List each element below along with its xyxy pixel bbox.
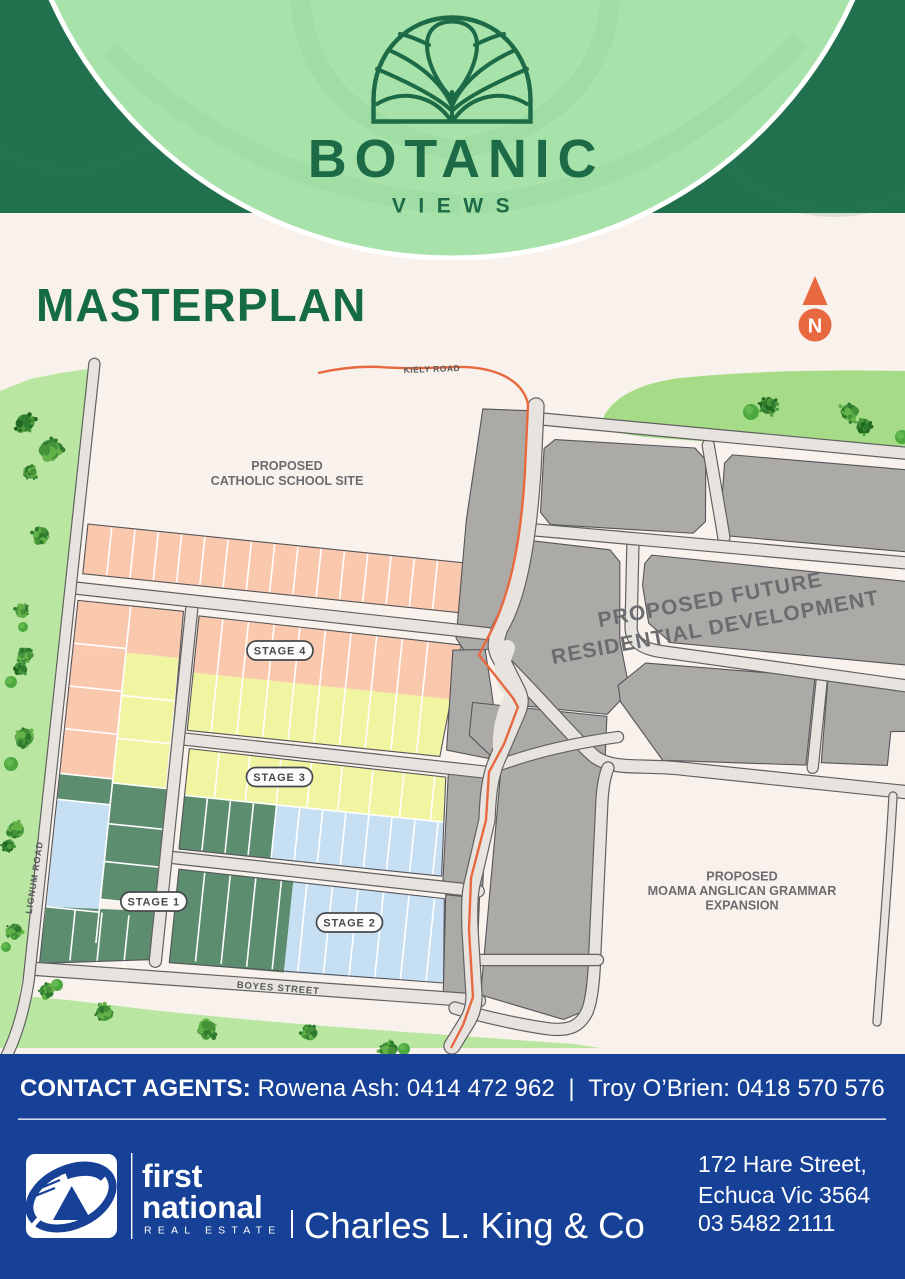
svg-text:CATHOLIC SCHOOL SITE: CATHOLIC SCHOOL SITE xyxy=(211,474,364,488)
svg-text:BOTANIC: BOTANIC xyxy=(308,129,605,189)
svg-text:STAGE 2: STAGE 2 xyxy=(323,917,376,929)
svg-text:VIEWS: VIEWS xyxy=(392,195,522,218)
svg-text:REAL ESTATE: REAL ESTATE xyxy=(144,1225,281,1237)
svg-text:N: N xyxy=(808,316,822,338)
svg-text:STAGE 1: STAGE 1 xyxy=(128,896,181,908)
svg-text:MASTERPLAN: MASTERPLAN xyxy=(36,279,366,331)
svg-text:PROPOSED: PROPOSED xyxy=(251,459,322,473)
svg-text:KIELY ROAD: KIELY ROAD xyxy=(403,363,460,375)
svg-text:EXPANSION: EXPANSION xyxy=(705,899,778,913)
svg-text:STAGE 4: STAGE 4 xyxy=(254,645,307,657)
svg-text:03 5482 2111: 03 5482 2111 xyxy=(698,1210,835,1236)
svg-text:Echuca Vic 3564: Echuca Vic 3564 xyxy=(698,1182,870,1208)
svg-text:CONTACT AGENTS: Rowena Ash: 04: CONTACT AGENTS: Rowena Ash: 0414 472 962… xyxy=(20,1075,885,1102)
svg-text:STAGE 3: STAGE 3 xyxy=(253,772,306,784)
svg-text:national: national xyxy=(142,1189,263,1225)
svg-text:Charles L. King & Co: Charles L. King & Co xyxy=(304,1205,645,1246)
svg-text:MOAMA ANGLICAN GRAMMAR: MOAMA ANGLICAN GRAMMAR xyxy=(648,884,837,898)
svg-text:PROPOSED: PROPOSED xyxy=(706,870,777,884)
svg-text:172 Hare Street,: 172 Hare Street, xyxy=(698,1151,867,1177)
